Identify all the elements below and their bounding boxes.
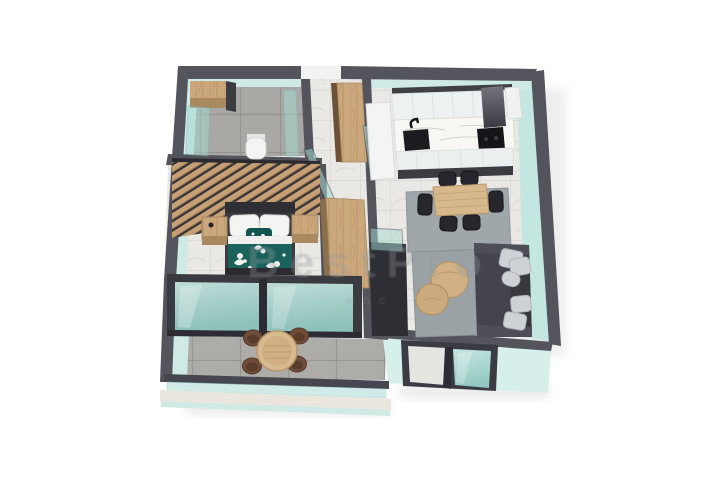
- coffee-table-small: [416, 284, 448, 315]
- dining-table: [433, 184, 489, 216]
- dining-chair: [439, 172, 457, 187]
- top-wall-right: [341, 66, 537, 81]
- sliding-door-mullion: [259, 279, 267, 335]
- cooktop-burner: [494, 136, 498, 140]
- nightstand-right: [292, 215, 318, 237]
- top-wall-left: [178, 66, 301, 79]
- nightstand-left: [202, 217, 227, 239]
- kitchen-tall-cabinet: [366, 102, 395, 180]
- dining-chair: [440, 216, 458, 232]
- living-window-open-pane: [408, 346, 447, 385]
- sofa-pillow: [510, 295, 532, 313]
- dining-chair: [418, 194, 433, 215]
- bed-headboard: [225, 202, 295, 213]
- balcony-table-top: [262, 336, 292, 366]
- dining-chair: [463, 215, 481, 231]
- hall-closet: [326, 198, 369, 288]
- dining-chair: [489, 191, 504, 212]
- kitchen-hood: [481, 86, 506, 128]
- shower-glass-right: [283, 90, 299, 156]
- media-wall: [369, 242, 408, 336]
- toilet: [246, 138, 266, 159]
- floorplan-render: BestPro мос: [0, 0, 720, 480]
- pillow-pattern: [252, 233, 255, 236]
- media-glass-panel: [370, 228, 403, 252]
- bedroom-sliding-door: [167, 274, 362, 338]
- hall-wardrobe-tall: [337, 83, 367, 162]
- dining-chair: [461, 171, 478, 186]
- sofa-pillow: [503, 311, 527, 331]
- bathroom-partition: [226, 81, 236, 112]
- kitchen-sink: [403, 129, 430, 151]
- table-lamp: [209, 223, 214, 228]
- kitchen-cooktop: [477, 127, 505, 151]
- floorplan-scene: [0, 0, 720, 480]
- shower-glass-left: [186, 106, 210, 156]
- living-window: [401, 340, 498, 391]
- nightstand-left-front: [202, 236, 227, 245]
- bed-frame-foot: [225, 268, 295, 275]
- entry-opening: [301, 66, 341, 79]
- kitchen-side-unit: [505, 87, 522, 119]
- nightstand-right-front: [292, 234, 318, 243]
- cooktop-burner: [484, 137, 488, 141]
